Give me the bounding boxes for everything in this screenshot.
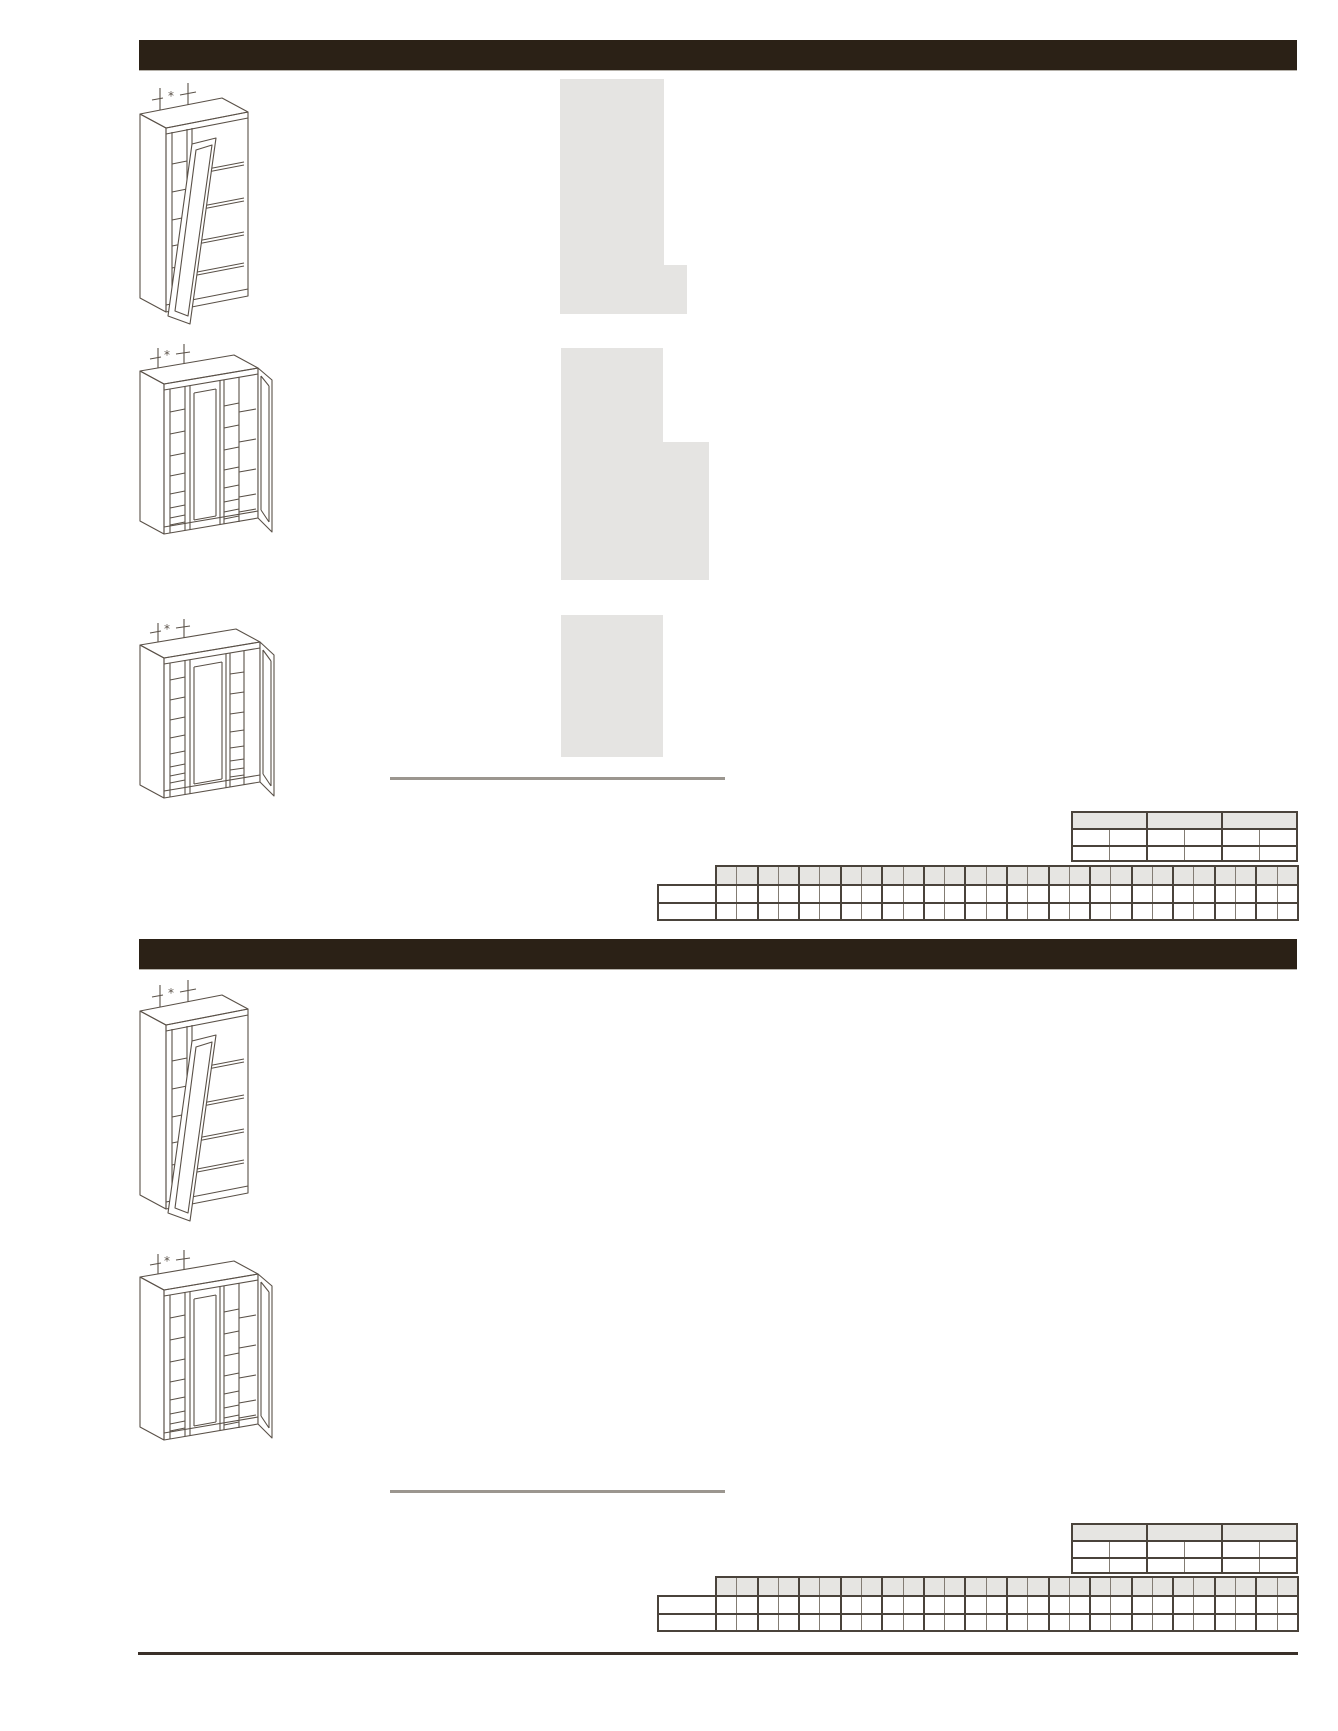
matrix-table-cell — [757, 1615, 778, 1631]
matrix-table-header-cell — [1048, 867, 1069, 884]
matrix-table-cell — [778, 1615, 798, 1631]
matrix-table-cell — [1089, 1597, 1110, 1613]
matrix-table-header-cell — [798, 867, 819, 884]
matrix-table-cell — [1277, 1597, 1297, 1613]
matrix-table-header-cell — [1089, 1578, 1110, 1595]
spec-table-header-cell — [1073, 1525, 1146, 1540]
matrix-table-row — [717, 902, 1297, 920]
matrix-table-header-cell — [1027, 867, 1047, 884]
matrix-table-header-cell — [1152, 1578, 1172, 1595]
matrix-table-header-cell — [986, 867, 1006, 884]
dimension-asterisk: * — [168, 986, 174, 1000]
matrix-table-label-column — [657, 884, 715, 921]
matrix-table-cell — [1255, 1615, 1276, 1631]
spec-table-cell — [1073, 847, 1109, 860]
matrix-table-header-cell — [1131, 1578, 1152, 1595]
matrix-table-header-cell — [881, 867, 902, 884]
matrix-table-cell — [1110, 904, 1130, 920]
matrix-table-cell — [1069, 1597, 1089, 1613]
matrix-table-cell — [1131, 904, 1152, 920]
cabinet-drawing-two-door-open: * — [130, 977, 270, 1223]
matrix-table-header-cell — [840, 867, 861, 884]
matrix-table-cell — [986, 904, 1006, 920]
matrix-table-cell — [986, 1597, 1006, 1613]
matrix-table-cell — [1131, 1615, 1152, 1631]
spec-table-header-row — [1073, 1525, 1296, 1542]
matrix-table-header-cell — [757, 867, 778, 884]
matrix-table-cell — [778, 904, 798, 920]
spec-table-header-cell — [1221, 1525, 1296, 1540]
matrix-table-cell — [840, 904, 861, 920]
matrix-table-cell — [757, 886, 778, 902]
spec-table-cell — [1221, 1542, 1259, 1557]
spec-table-row — [1073, 830, 1296, 845]
matrix-table-label-cell — [659, 1613, 715, 1631]
matrix-table-header-cell — [1131, 867, 1152, 884]
matrix-table-cell — [1089, 904, 1110, 920]
matrix-table-cell — [1131, 886, 1152, 902]
spec-table-cell — [1184, 1559, 1221, 1572]
matrix-table-header-cell — [861, 1578, 881, 1595]
spec-table-row — [1073, 845, 1296, 860]
matrix-table-header-cell — [861, 867, 881, 884]
matrix-table-header-cell — [1214, 1578, 1235, 1595]
matrix-table-header-cell — [1006, 1578, 1027, 1595]
matrix-table-cell — [903, 1615, 923, 1631]
spec-table-cell — [1184, 830, 1221, 845]
matrix-table-cell — [1006, 886, 1027, 902]
matrix-table-header-cell — [1152, 867, 1172, 884]
matrix-table-cell — [736, 1597, 756, 1613]
matrix-table-cell — [986, 886, 1006, 902]
spec-table-cell — [1073, 1542, 1109, 1557]
matrix-table-cell — [1110, 1597, 1130, 1613]
matrix-table-cell — [1277, 904, 1297, 920]
matrix-table-header-cell — [1235, 1578, 1255, 1595]
spec-table-cell — [1184, 847, 1221, 860]
matrix-table-header-cell — [923, 867, 944, 884]
matrix-table-cell — [757, 1597, 778, 1613]
matrix-table-cell — [861, 904, 881, 920]
matrix-table-cell — [923, 1615, 944, 1631]
matrix-table-cell — [1027, 1597, 1047, 1613]
matrix-table-cell — [1235, 1615, 1255, 1631]
matrix-table-header-cell — [923, 1578, 944, 1595]
matrix-table-cell — [798, 904, 819, 920]
matrix-table-cell — [1193, 1615, 1213, 1631]
matrix-table-cell — [861, 1597, 881, 1613]
matrix-table-cell — [840, 1597, 861, 1613]
matrix-table-cell — [964, 1615, 985, 1631]
spec-table-header-row — [1073, 813, 1296, 830]
matrix-table-header-row — [715, 1576, 1299, 1595]
matrix-table-header-cell — [881, 1578, 902, 1595]
matrix-table-header-cell — [1193, 867, 1213, 884]
matrix-table-cell — [944, 1615, 964, 1631]
matrix-table-cell — [1048, 886, 1069, 902]
matrix-table-header-cell — [1255, 867, 1276, 884]
matrix-table-cell — [1193, 886, 1213, 902]
matrix-table-cell — [819, 886, 839, 902]
matrix-table-cell — [881, 886, 902, 902]
matrix-table-cell — [1214, 1597, 1235, 1613]
matrix-table — [657, 865, 1299, 921]
matrix-table-cell — [1214, 886, 1235, 902]
matrix-table-cell — [1131, 1597, 1152, 1613]
matrix-table-header-cell — [1110, 867, 1130, 884]
matrix-table-header-cell — [1069, 867, 1089, 884]
matrix-table-header-cell — [903, 1578, 923, 1595]
matrix-table-cell — [1027, 904, 1047, 920]
matrix-table-cell — [819, 1615, 839, 1631]
cabinet-drawing-wide-three-section: * — [130, 618, 282, 804]
matrix-table-row — [717, 1597, 1297, 1613]
matrix-table-cell — [964, 1597, 985, 1613]
spec-table-header-cell — [1221, 813, 1296, 828]
matrix-table-header-cell — [717, 1578, 736, 1595]
matrix-table-cell — [881, 1597, 902, 1613]
matrix-table-cell — [861, 886, 881, 902]
matrix-table-cell — [717, 886, 736, 902]
matrix-table-cell — [1214, 1615, 1235, 1631]
matrix-table-cell — [1006, 1615, 1027, 1631]
matrix-table-cell — [1214, 904, 1235, 920]
matrix-table-cell — [1152, 904, 1172, 920]
matrix-table-cell — [819, 904, 839, 920]
matrix-table-cell — [1235, 1597, 1255, 1613]
matrix-table-body — [715, 1595, 1299, 1632]
matrix-table-cell — [1172, 904, 1193, 920]
spec-table-row — [1073, 1557, 1296, 1572]
cabinet-drawing-three-section: * — [130, 342, 280, 542]
matrix-table-label-cell — [659, 886, 715, 902]
matrix-table-header-cell — [1069, 1578, 1089, 1595]
matrix-table-header-cell — [840, 1578, 861, 1595]
matrix-table-cell — [1006, 904, 1027, 920]
matrix-table-header-cell — [964, 867, 985, 884]
matrix-table-cell — [861, 1615, 881, 1631]
matrix-table-header-cell — [1048, 1578, 1069, 1595]
image-placeholder — [560, 79, 664, 265]
image-placeholder — [561, 442, 709, 580]
matrix-table-cell — [757, 904, 778, 920]
matrix-table-header-cell — [757, 1578, 778, 1595]
spec-table-cell — [1259, 830, 1296, 845]
spec-table-cell — [1146, 847, 1184, 860]
matrix-table-header-cell — [1027, 1578, 1047, 1595]
matrix-table-cell — [944, 886, 964, 902]
spec-table-header-cell — [1073, 813, 1146, 828]
matrix-table-header-cell — [778, 867, 798, 884]
matrix-table-cell — [798, 1615, 819, 1631]
matrix-table-header-cell — [819, 1578, 839, 1595]
matrix-table-label-column — [657, 1595, 715, 1632]
matrix-table-cell — [778, 886, 798, 902]
section-divider-line — [390, 1490, 725, 1493]
matrix-table-cell — [1152, 1615, 1172, 1631]
matrix-table-header-cell — [819, 867, 839, 884]
matrix-table-cell — [1048, 1597, 1069, 1613]
matrix-table-header-cell — [903, 867, 923, 884]
matrix-table-header-cell — [1255, 1578, 1276, 1595]
section-divider-line — [390, 777, 725, 780]
matrix-table-cell — [798, 886, 819, 902]
matrix-table-cell — [778, 1597, 798, 1613]
matrix-table-cell — [1069, 1615, 1089, 1631]
spec-table-cell — [1184, 1542, 1221, 1557]
dimension-asterisk: * — [164, 348, 170, 362]
matrix-table-cell — [840, 886, 861, 902]
matrix-table-cell — [986, 1615, 1006, 1631]
matrix-table-header-cell — [717, 867, 736, 884]
matrix-table-cell — [1006, 1597, 1027, 1613]
matrix-table-header-cell — [1089, 867, 1110, 884]
matrix-table-cell — [1027, 1615, 1047, 1631]
matrix-table-cell — [1235, 886, 1255, 902]
matrix-table-label-cell — [659, 1597, 715, 1613]
matrix-table-cell — [1172, 886, 1193, 902]
matrix-table-cell — [1089, 886, 1110, 902]
matrix-table-cell — [1027, 886, 1047, 902]
matrix-table-cell — [1277, 886, 1297, 902]
spec-table-cell — [1109, 847, 1146, 860]
cabinet-drawing-two-door-open: * — [130, 80, 270, 326]
spec-table-cell — [1221, 1559, 1259, 1572]
spec-table-header-cell — [1146, 813, 1221, 828]
matrix-table-cell — [1255, 904, 1276, 920]
matrix-table-cell — [717, 904, 736, 920]
matrix-table-cell — [923, 904, 944, 920]
matrix-table — [657, 1576, 1299, 1632]
spec-table-cell — [1221, 847, 1259, 860]
matrix-table-cell — [923, 886, 944, 902]
matrix-table-cell — [717, 1597, 736, 1613]
matrix-table-header-cell — [1006, 867, 1027, 884]
spec-table-cell — [1073, 1559, 1109, 1572]
spec-table-cell — [1259, 1542, 1296, 1557]
matrix-table-row — [717, 1613, 1297, 1631]
matrix-table-header-cell — [964, 1578, 985, 1595]
dimension-asterisk: * — [168, 89, 174, 103]
matrix-table-cell — [923, 1597, 944, 1613]
matrix-table-cell — [798, 1597, 819, 1613]
matrix-table-cell — [903, 904, 923, 920]
page-bottom-rule — [138, 1652, 1298, 1655]
matrix-table-cell — [1110, 886, 1130, 902]
image-placeholder — [561, 348, 663, 442]
matrix-table-header-cell — [1277, 1578, 1297, 1595]
section-header-bar — [139, 939, 1297, 970]
matrix-table-cell — [1089, 1615, 1110, 1631]
spec-table-cell — [1259, 1559, 1296, 1572]
matrix-table-cell — [964, 904, 985, 920]
matrix-table-header-cell — [944, 1578, 964, 1595]
matrix-table-cell — [1172, 1615, 1193, 1631]
matrix-table-cell — [903, 886, 923, 902]
matrix-table-cell — [1069, 886, 1089, 902]
spec-table-header-cell — [1146, 1525, 1221, 1540]
matrix-table-cell — [840, 1615, 861, 1631]
matrix-table-cell — [1277, 1615, 1297, 1631]
matrix-table-header-row — [715, 865, 1299, 884]
matrix-table-cell — [736, 904, 756, 920]
matrix-table-header-cell — [1110, 1578, 1130, 1595]
spec-table-cell — [1259, 847, 1296, 860]
spec-table-cell — [1146, 1559, 1184, 1572]
spec-table-cell — [1109, 1559, 1146, 1572]
spec-table-cell — [1073, 830, 1109, 845]
spec-table — [1071, 811, 1298, 862]
image-placeholder — [561, 615, 663, 757]
matrix-table-cell — [736, 1615, 756, 1631]
matrix-table-cell — [964, 886, 985, 902]
matrix-table-cell — [1255, 1597, 1276, 1613]
matrix-table-label-cell — [659, 902, 715, 920]
spec-table-cell — [1146, 830, 1184, 845]
cabinet-drawing-three-section: * — [130, 1248, 280, 1448]
spec-table-cell — [1109, 1542, 1146, 1557]
matrix-table-cell — [717, 1615, 736, 1631]
matrix-table-cell — [1255, 886, 1276, 902]
matrix-table-header-cell — [736, 867, 756, 884]
image-placeholder — [560, 265, 687, 314]
matrix-table-body — [715, 884, 1299, 921]
matrix-table-header-cell — [1235, 867, 1255, 884]
matrix-table-cell — [1110, 1615, 1130, 1631]
dimension-asterisk: * — [164, 622, 170, 636]
matrix-table-cell — [903, 1597, 923, 1613]
matrix-table-header-cell — [944, 867, 964, 884]
matrix-table-cell — [1193, 904, 1213, 920]
matrix-table-cell — [1235, 904, 1255, 920]
matrix-table-cell — [1069, 904, 1089, 920]
matrix-table-header-cell — [1172, 1578, 1193, 1595]
matrix-table-header-cell — [986, 1578, 1006, 1595]
section-header-bar — [139, 40, 1297, 71]
matrix-table-header-cell — [798, 1578, 819, 1595]
matrix-table-header-cell — [778, 1578, 798, 1595]
matrix-table-cell — [1172, 1597, 1193, 1613]
spec-table-cell — [1109, 830, 1146, 845]
catalog-page: * * — [0, 0, 1338, 1731]
matrix-table-row — [717, 886, 1297, 902]
matrix-table-cell — [819, 1597, 839, 1613]
matrix-table-cell — [1152, 1597, 1172, 1613]
spec-table-cell — [1221, 830, 1259, 845]
matrix-table-header-cell — [1193, 1578, 1213, 1595]
matrix-table-cell — [881, 1615, 902, 1631]
matrix-table-header-cell — [1172, 867, 1193, 884]
spec-table-row — [1073, 1542, 1296, 1557]
matrix-table-header-cell — [736, 1578, 756, 1595]
spec-table — [1071, 1523, 1298, 1574]
matrix-table-cell — [1193, 1597, 1213, 1613]
matrix-table-cell — [736, 886, 756, 902]
spec-table-cell — [1146, 1542, 1184, 1557]
matrix-table-header-cell — [1277, 867, 1297, 884]
matrix-table-cell — [1048, 904, 1069, 920]
matrix-table-cell — [944, 1597, 964, 1613]
dimension-asterisk: * — [164, 1254, 170, 1268]
matrix-table-header-cell — [1214, 867, 1235, 884]
matrix-table-cell — [881, 904, 902, 920]
matrix-table-cell — [1048, 1615, 1069, 1631]
matrix-table-cell — [1152, 886, 1172, 902]
matrix-table-cell — [944, 904, 964, 920]
